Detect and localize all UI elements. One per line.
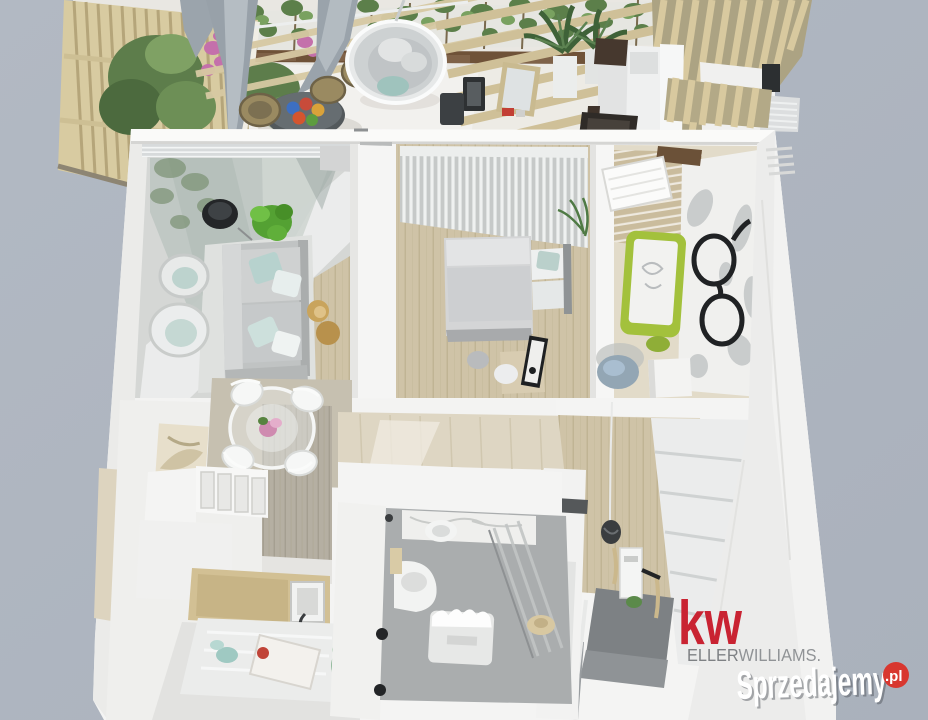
svg-text:.pl: .pl [885, 668, 903, 685]
svg-text:Sprzedajemy: Sprzedajemy [736, 659, 888, 708]
